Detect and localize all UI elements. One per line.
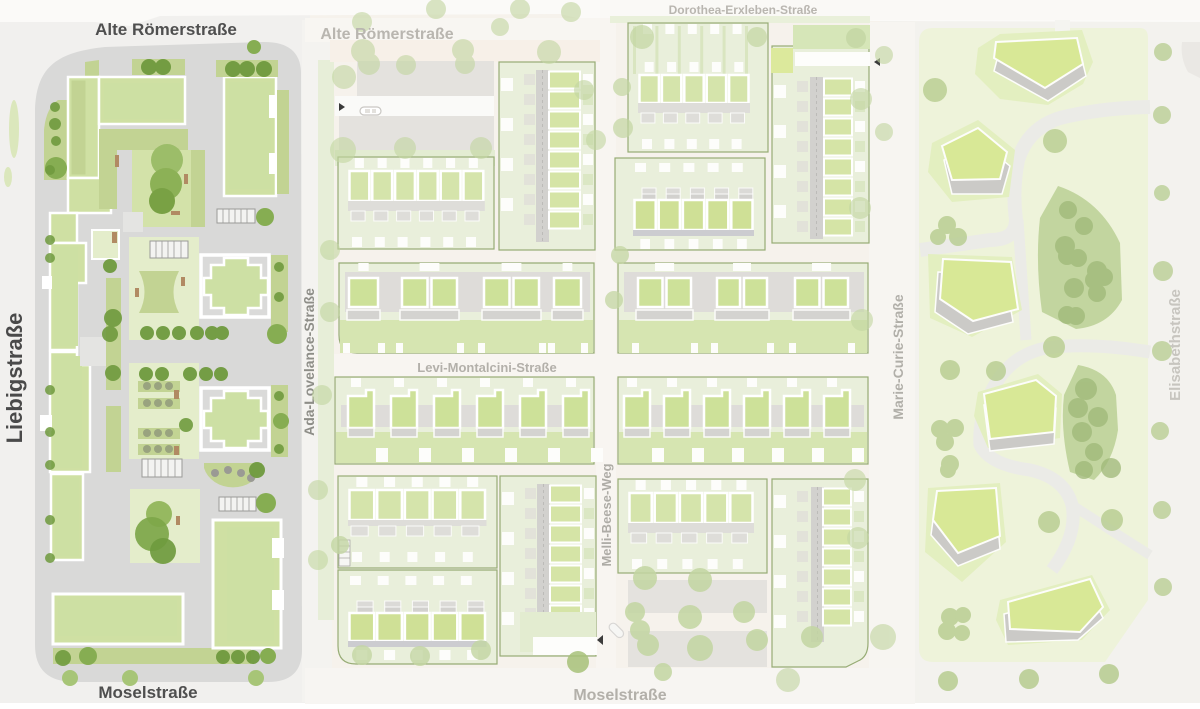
svg-text:Melli-Beese-Weg: Melli-Beese-Weg	[599, 463, 614, 566]
svg-text:Alte Römerstraße: Alte Römerstraße	[95, 20, 237, 39]
svg-text:Moselstraße: Moselstraße	[98, 683, 197, 702]
svg-text:Moselstraße: Moselstraße	[573, 687, 666, 704]
svg-text:Levi-Montalcini-Straße: Levi-Montalcini-Straße	[417, 360, 556, 375]
svg-text:Dorothea-Erxleben-Straße: Dorothea-Erxleben-Straße	[669, 3, 818, 17]
svg-text:Ada-Lovelance-Straße: Ada-Lovelance-Straße	[301, 288, 317, 436]
svg-text:Elisabethstraße: Elisabethstraße	[1167, 289, 1184, 401]
svg-text:Alte Römerstraße: Alte Römerstraße	[320, 26, 453, 43]
svg-text:Liebigstraße: Liebigstraße	[2, 313, 27, 444]
svg-text:Marie-Curie-Straße: Marie-Curie-Straße	[890, 294, 906, 419]
